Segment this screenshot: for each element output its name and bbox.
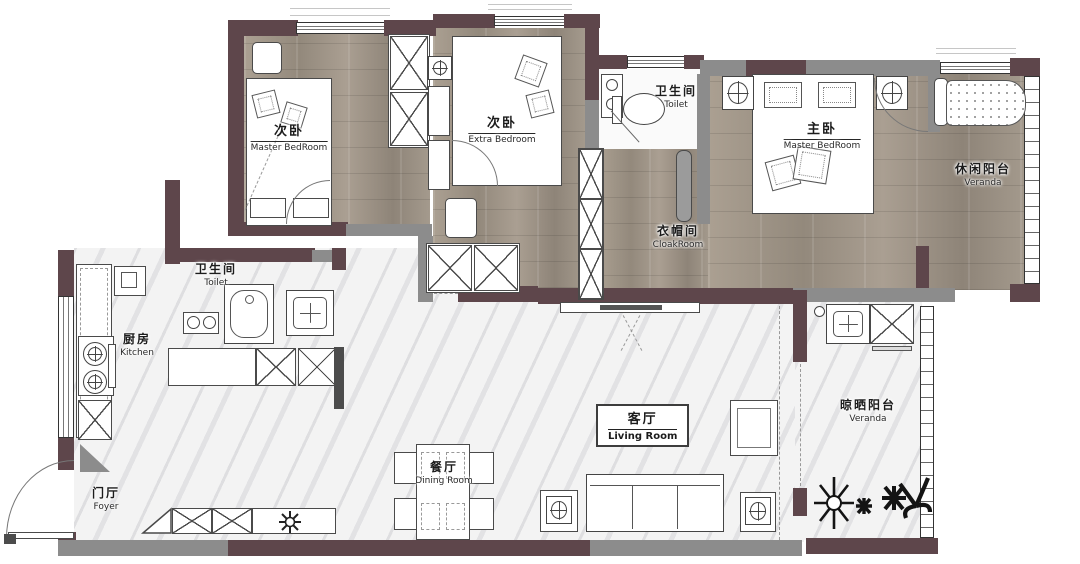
daybed: [946, 80, 1026, 126]
wardrobe-cell: [474, 245, 518, 291]
sofa-seat-divider: [632, 485, 633, 529]
wardrobe-panel: [428, 86, 450, 136]
room-label-master-bedroom: 主卧 Master BedRoom: [784, 118, 861, 151]
wardrobe-cell: [390, 36, 428, 90]
room-label-veranda-right: 休闲阳台 Veranda: [955, 160, 1011, 188]
room-label-veranda-bottom: 晾晒阳台 Veranda: [840, 396, 896, 424]
room-label-master-bedroom-en: Master BedRoom: [784, 141, 861, 151]
entry-door-leaf: [8, 532, 74, 539]
sink-drain-icon: [606, 79, 618, 91]
wall: [228, 20, 244, 236]
room-label-bedroom-mid-en: Extra Bedroom: [468, 135, 535, 145]
room-label-foyer-zh: 门厅: [92, 484, 120, 501]
stove-burner-icon: [83, 370, 107, 394]
room-label-living: 客厅 Living Room: [596, 404, 689, 447]
partition-wall: [793, 288, 955, 302]
room-label-bedroom-mid-zh: 次卧: [468, 112, 535, 134]
stove-burner-icon: [83, 342, 107, 366]
room-label-dining-zh: 餐厅: [415, 458, 473, 475]
wall: [916, 246, 929, 290]
wardrobe-cell: [390, 92, 428, 146]
hall-cabinet-cell: [298, 348, 336, 386]
partition-wall: [697, 74, 710, 224]
room-label-bedroom-left-zh: 次卧: [251, 120, 328, 142]
nightstand: [445, 198, 477, 238]
room-label-dining: 餐厅 Dining Room: [415, 458, 473, 486]
room-label-veranda-right-en: Veranda: [955, 178, 1011, 188]
hall-cabinet-cell: [256, 348, 296, 386]
dining-chair: [468, 498, 494, 530]
washing-machine-base: [872, 346, 912, 351]
wardrobe-cell: [579, 199, 603, 249]
pillow: [818, 82, 856, 108]
wall: [165, 248, 315, 262]
room-label-veranda-bottom-zh: 晾晒阳台: [840, 396, 896, 413]
room-label-toilet-top-en: Toilet: [655, 100, 697, 110]
room-label-cloakroom: 衣帽间 CloakRoom: [653, 222, 704, 250]
wall: [332, 248, 346, 270]
room-label-kitchen-en: Kitchen: [120, 348, 154, 358]
window: [940, 62, 1012, 74]
entry-door-swing-arc: [6, 460, 74, 538]
window: [296, 22, 386, 34]
room-label-dining-en: Dining Room: [415, 476, 473, 486]
pillow: [793, 146, 832, 185]
tv: [600, 305, 662, 310]
sofa-seat-divider: [677, 485, 678, 529]
partition-wall: [700, 60, 746, 76]
window-sill-lines: [488, 2, 572, 12]
partition-wall: [346, 224, 432, 236]
water-heater-dial: [121, 272, 137, 288]
ceiling-lamp-icon: [428, 56, 452, 80]
wardrobe-panel: [428, 140, 450, 190]
window: [494, 16, 566, 26]
kitchen-cabinet-cell: [78, 400, 112, 440]
partition-wall: [590, 540, 802, 556]
floor-plan: 次卧 Master BedRoom 次卧 Extra Bedroom 卫生间 T…: [0, 0, 1080, 564]
window-sill-lines: [290, 6, 390, 18]
nightstand: [252, 42, 282, 74]
shoe-cabinet-cell: [172, 508, 212, 534]
room-label-toilet-left: 卫生间 Toilet: [195, 260, 237, 288]
room-label-bedroom-mid: 次卧 Extra Bedroom: [468, 112, 535, 145]
room-label-toilet-left-zh: 卫生间: [195, 260, 237, 277]
room-label-toilet-left-en: Toilet: [195, 278, 237, 288]
faucet-icon: [187, 316, 200, 329]
end-table-plant-icon: [546, 496, 572, 524]
partition-wall: [58, 540, 228, 556]
wall: [806, 538, 938, 554]
wardrobe-cell: [579, 249, 603, 299]
room-label-veranda-bottom-en: Veranda: [840, 414, 896, 424]
room-label-foyer: 门厅 Foyer: [92, 484, 120, 512]
room-label-kitchen-zh: 厨房: [120, 330, 154, 347]
dining-chair-dashed: [446, 503, 465, 530]
sofa: [586, 474, 724, 532]
laundry-sink: [826, 304, 870, 344]
shoe-cabinet-triangle: [142, 508, 172, 534]
wall: [597, 55, 627, 69]
wall: [228, 540, 590, 556]
plants: [812, 470, 930, 536]
wardrobe-cell: [579, 149, 603, 199]
sliding-door-opening: [800, 364, 801, 486]
room-label-bedroom-left-en: Master BedRoom: [251, 143, 328, 153]
room-label-toilet-top: 卫生间 Toilet: [655, 82, 697, 110]
plant-icon: [278, 510, 302, 534]
nightstand-lamp-icon: [722, 76, 754, 110]
end-table-plant-icon: [745, 497, 771, 525]
room-label-bedroom-left: 次卧 Master BedRoom: [251, 120, 328, 153]
curtain-line: [779, 306, 780, 540]
room-label-living-zh: 客厅: [608, 408, 677, 430]
wall: [793, 290, 807, 362]
hall-counter: [168, 348, 256, 386]
window-sill-lines: [936, 46, 1016, 56]
window: [58, 296, 74, 438]
vanity-sink: [286, 290, 334, 336]
room-label-toilet-top-zh: 卫生间: [655, 82, 697, 99]
room-label-master-bedroom-zh: 主卧: [784, 118, 861, 140]
bench: [250, 198, 286, 218]
wardrobe-cell: [428, 245, 472, 291]
shoe-cabinet-cell: [212, 508, 252, 534]
door-hinge-block: [4, 534, 16, 544]
door-opening: [434, 293, 458, 294]
dining-chair-dashed: [421, 503, 440, 530]
wall: [793, 488, 807, 516]
room-label-foyer-en: Foyer: [92, 502, 120, 512]
room-label-cloakroom-en: CloakRoom: [653, 240, 704, 250]
sliding-door-panel: [676, 150, 692, 222]
faucet-icon: [814, 306, 825, 317]
window: [627, 56, 685, 68]
wall: [1010, 284, 1040, 302]
room-label-kitchen: 厨房 Kitchen: [120, 330, 154, 358]
stove-panel: [108, 344, 116, 388]
room-label-veranda-right-zh: 休闲阳台: [955, 160, 1011, 177]
bathtub: [224, 284, 274, 344]
wall: [1010, 58, 1040, 76]
washing-machine: [870, 304, 914, 344]
faucet-icon: [203, 316, 216, 329]
side-table-inner: [737, 408, 771, 448]
pillow: [764, 82, 802, 108]
room-label-living-en: Living Room: [608, 431, 677, 442]
corner-cabinet: [80, 444, 110, 472]
window-strip: [1024, 76, 1040, 284]
room-label-cloakroom-zh: 衣帽间: [653, 222, 704, 239]
partition-stub: [334, 347, 344, 409]
wall: [58, 250, 74, 296]
wall: [433, 14, 495, 28]
